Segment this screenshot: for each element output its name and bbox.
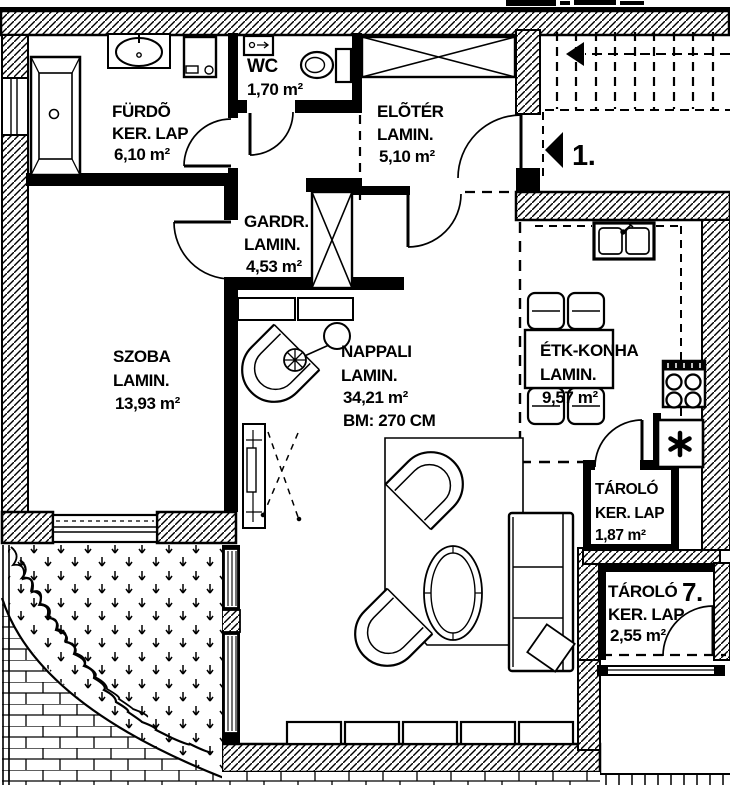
wall-top-band [1,11,729,35]
room-ceiling-height: BM: 270 CM [343,411,436,430]
room-name: SZOBA [113,347,171,366]
room-name: ELÕTÉR [377,101,444,121]
room-name: WC [247,56,279,77]
window-terrace-lower [224,634,238,733]
washbasin [108,34,170,68]
wall-pier [222,610,240,632]
room-area: 6,10 m² [114,145,171,164]
room-area: 34,21 m² [343,388,409,407]
coffee-table [424,546,482,640]
room-finish: KER. LAP [608,605,684,624]
dining-chair [568,293,604,329]
room-name: GARDR. [244,212,309,231]
room-name: TÁROLÓ [608,582,678,601]
tv-cabinet [243,424,265,528]
label-gardrobe: GARDR. LAMIN. 4,53 m² [244,212,309,276]
radiator-row [287,722,573,744]
room-finish: LAMIN. [341,366,397,385]
window-bathroom [2,78,28,135]
floor-plan: 1. [0,0,730,785]
kitchen-sink [594,223,654,259]
stove [663,361,705,408]
wall-bottom-band [222,744,600,772]
room-area: 4,53 m² [246,257,303,276]
room-finish: LAMIN. [540,365,596,384]
room-finish: LAMIN. [244,235,300,254]
dining-chair [528,293,564,329]
room-name: TÁROLÓ [595,480,658,498]
wardrobe-gardrobe [312,192,352,288]
room-area: 1,87 m² [595,527,646,544]
room-area: 1,70 m² [247,80,304,99]
room-area: 2,55 m² [610,626,667,645]
room-finish: LAMIN. [113,371,169,390]
sideboard [238,298,353,320]
wardrobe-entry [362,37,515,77]
room-name: ÉTK-KONHA [540,341,639,360]
room-finish: LAMIN. [377,125,433,144]
room-area: 5,10 m² [379,147,436,166]
room-finish: KER. LAP [112,124,188,143]
sofa [509,513,575,672]
refrigerator [658,420,703,467]
room-finish: KER. LAP [595,505,664,522]
window-terrace-upper [224,549,238,608]
window-szoba [53,515,157,542]
room-name: NAPPALI [341,342,412,361]
washing-machine [184,37,216,77]
entrance-number: 1. [572,140,595,172]
room-name: FÜRDÕ [112,101,171,121]
terrace [2,545,224,785]
paving-strip [222,772,600,785]
room-number: 7. [682,577,703,607]
threshold-storage7 [598,666,724,675]
room-area: 9,57 m² [542,388,599,407]
hand-basin [244,36,273,55]
bathtub [31,57,80,175]
room-area: 13,93 m² [115,394,181,413]
